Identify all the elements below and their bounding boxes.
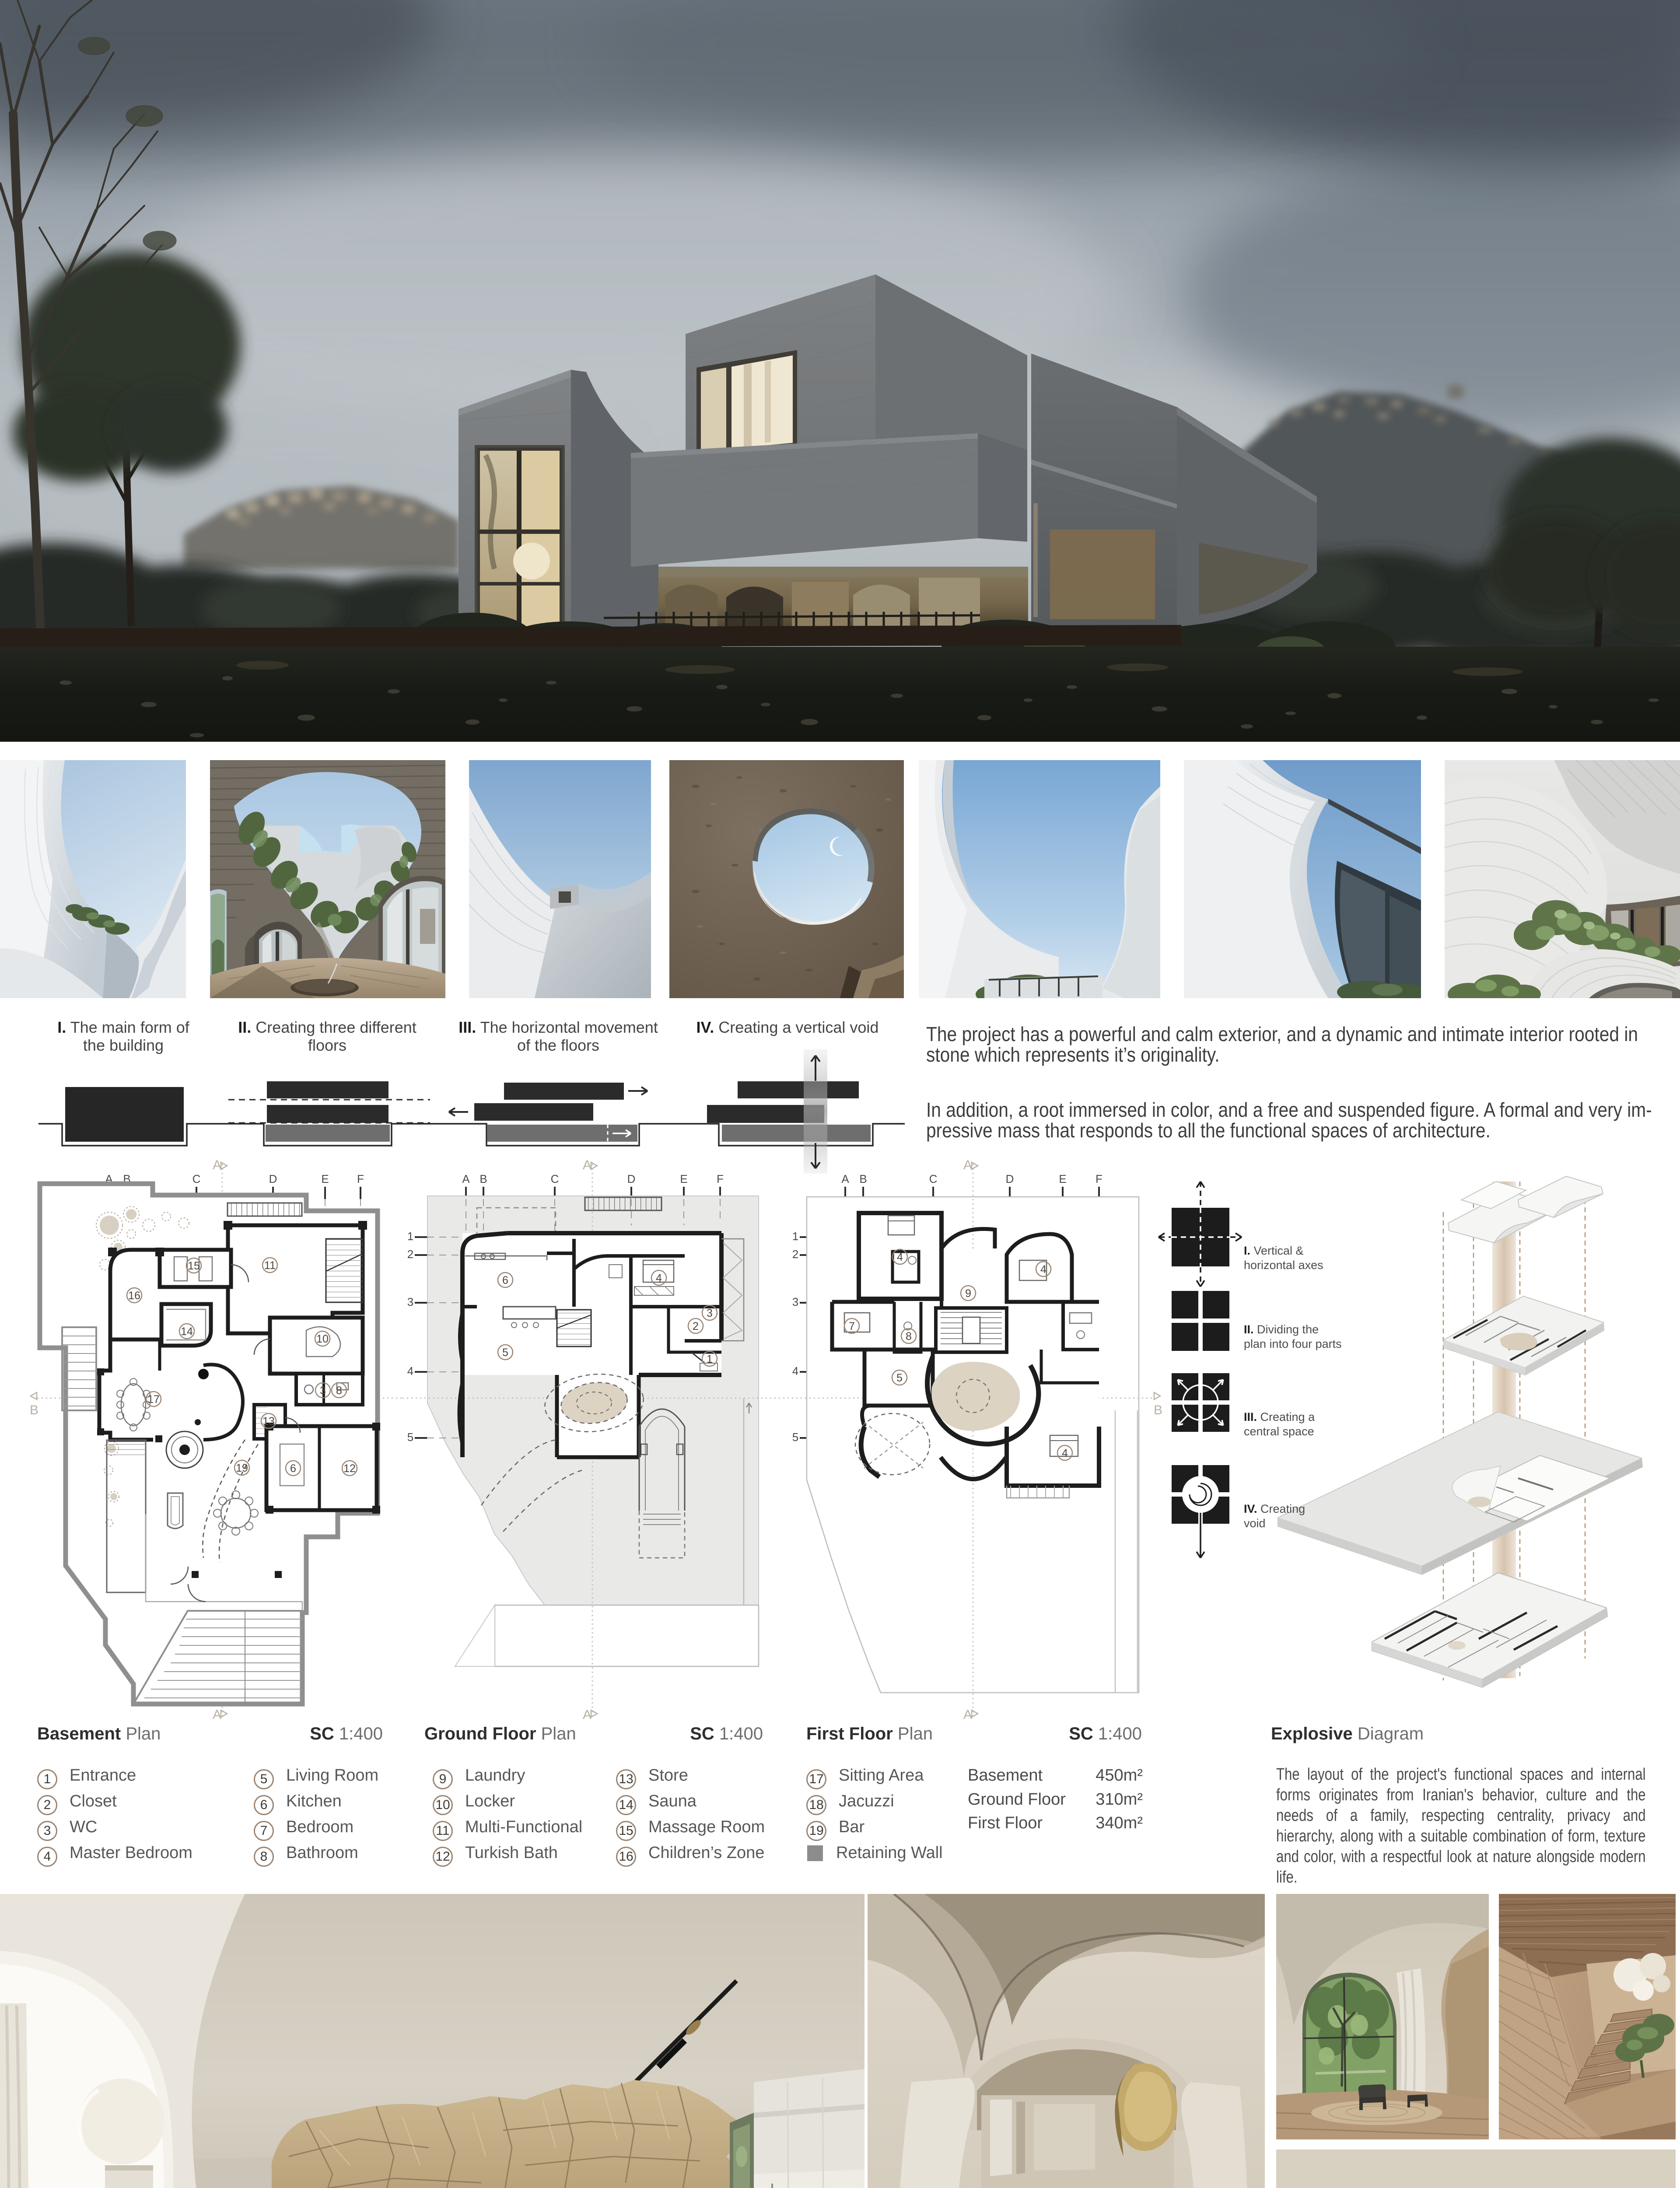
svg-text:A: A (841, 1172, 849, 1185)
svg-text:8: 8 (336, 1385, 342, 1397)
svg-text:5: 5 (407, 1431, 413, 1444)
svg-text:2: 2 (407, 1248, 413, 1261)
svg-text:A: A (462, 1172, 470, 1185)
svg-text:19: 19 (236, 1462, 248, 1474)
svg-text:E: E (321, 1172, 329, 1185)
svg-text:B: B (30, 1403, 38, 1417)
svg-text:C: C (192, 1172, 201, 1185)
svg-text:4: 4 (407, 1364, 413, 1378)
svg-text:D: D (269, 1172, 277, 1185)
svg-text:3: 3 (320, 1385, 326, 1397)
svg-text:A: A (963, 1708, 972, 1722)
svg-text:10: 10 (316, 1333, 329, 1345)
svg-text:7: 7 (849, 1320, 855, 1332)
svg-text:2: 2 (792, 1248, 798, 1261)
svg-text:3: 3 (707, 1307, 713, 1319)
svg-text:5: 5 (792, 1431, 798, 1444)
svg-text:4: 4 (1062, 1447, 1068, 1459)
svg-text:3: 3 (407, 1295, 413, 1308)
svg-text:5: 5 (896, 1372, 903, 1384)
svg-text:13: 13 (262, 1415, 275, 1427)
svg-text:4: 4 (656, 1272, 662, 1284)
svg-text:6: 6 (290, 1462, 296, 1475)
svg-text:15: 15 (188, 1260, 200, 1272)
svg-text:9: 9 (965, 1287, 971, 1300)
svg-text:B: B (859, 1172, 867, 1185)
svg-text:E: E (1059, 1172, 1066, 1185)
svg-text:A: A (213, 1708, 221, 1722)
svg-text:E: E (680, 1172, 687, 1185)
svg-text:D: D (627, 1172, 636, 1185)
svg-text:D: D (1006, 1172, 1014, 1185)
svg-text:1: 1 (407, 1230, 413, 1243)
svg-text:4: 4 (1040, 1263, 1046, 1276)
svg-text:12: 12 (343, 1462, 356, 1475)
svg-text:4: 4 (897, 1251, 903, 1263)
svg-text:A: A (583, 1708, 591, 1722)
svg-text:A: A (963, 1160, 972, 1172)
svg-text:1: 1 (707, 1353, 713, 1365)
svg-text:4: 4 (792, 1364, 798, 1378)
svg-text:C: C (551, 1172, 559, 1185)
svg-text:F: F (1095, 1172, 1102, 1185)
svg-text:A: A (583, 1160, 591, 1172)
svg-text:2: 2 (693, 1320, 699, 1332)
svg-text:8: 8 (906, 1330, 912, 1343)
svg-text:1: 1 (792, 1230, 798, 1243)
svg-text:3: 3 (792, 1295, 798, 1308)
svg-text:F: F (357, 1172, 364, 1185)
svg-text:11: 11 (264, 1259, 276, 1272)
svg-text:16: 16 (128, 1290, 140, 1302)
svg-text:14: 14 (181, 1325, 193, 1338)
svg-text:C: C (929, 1172, 938, 1185)
svg-text:5: 5 (502, 1346, 508, 1359)
svg-text:F: F (717, 1172, 724, 1185)
svg-text:B: B (479, 1172, 487, 1185)
svg-text:A: A (213, 1160, 221, 1172)
svg-text:6: 6 (502, 1274, 508, 1287)
svg-text:17: 17 (147, 1393, 160, 1406)
